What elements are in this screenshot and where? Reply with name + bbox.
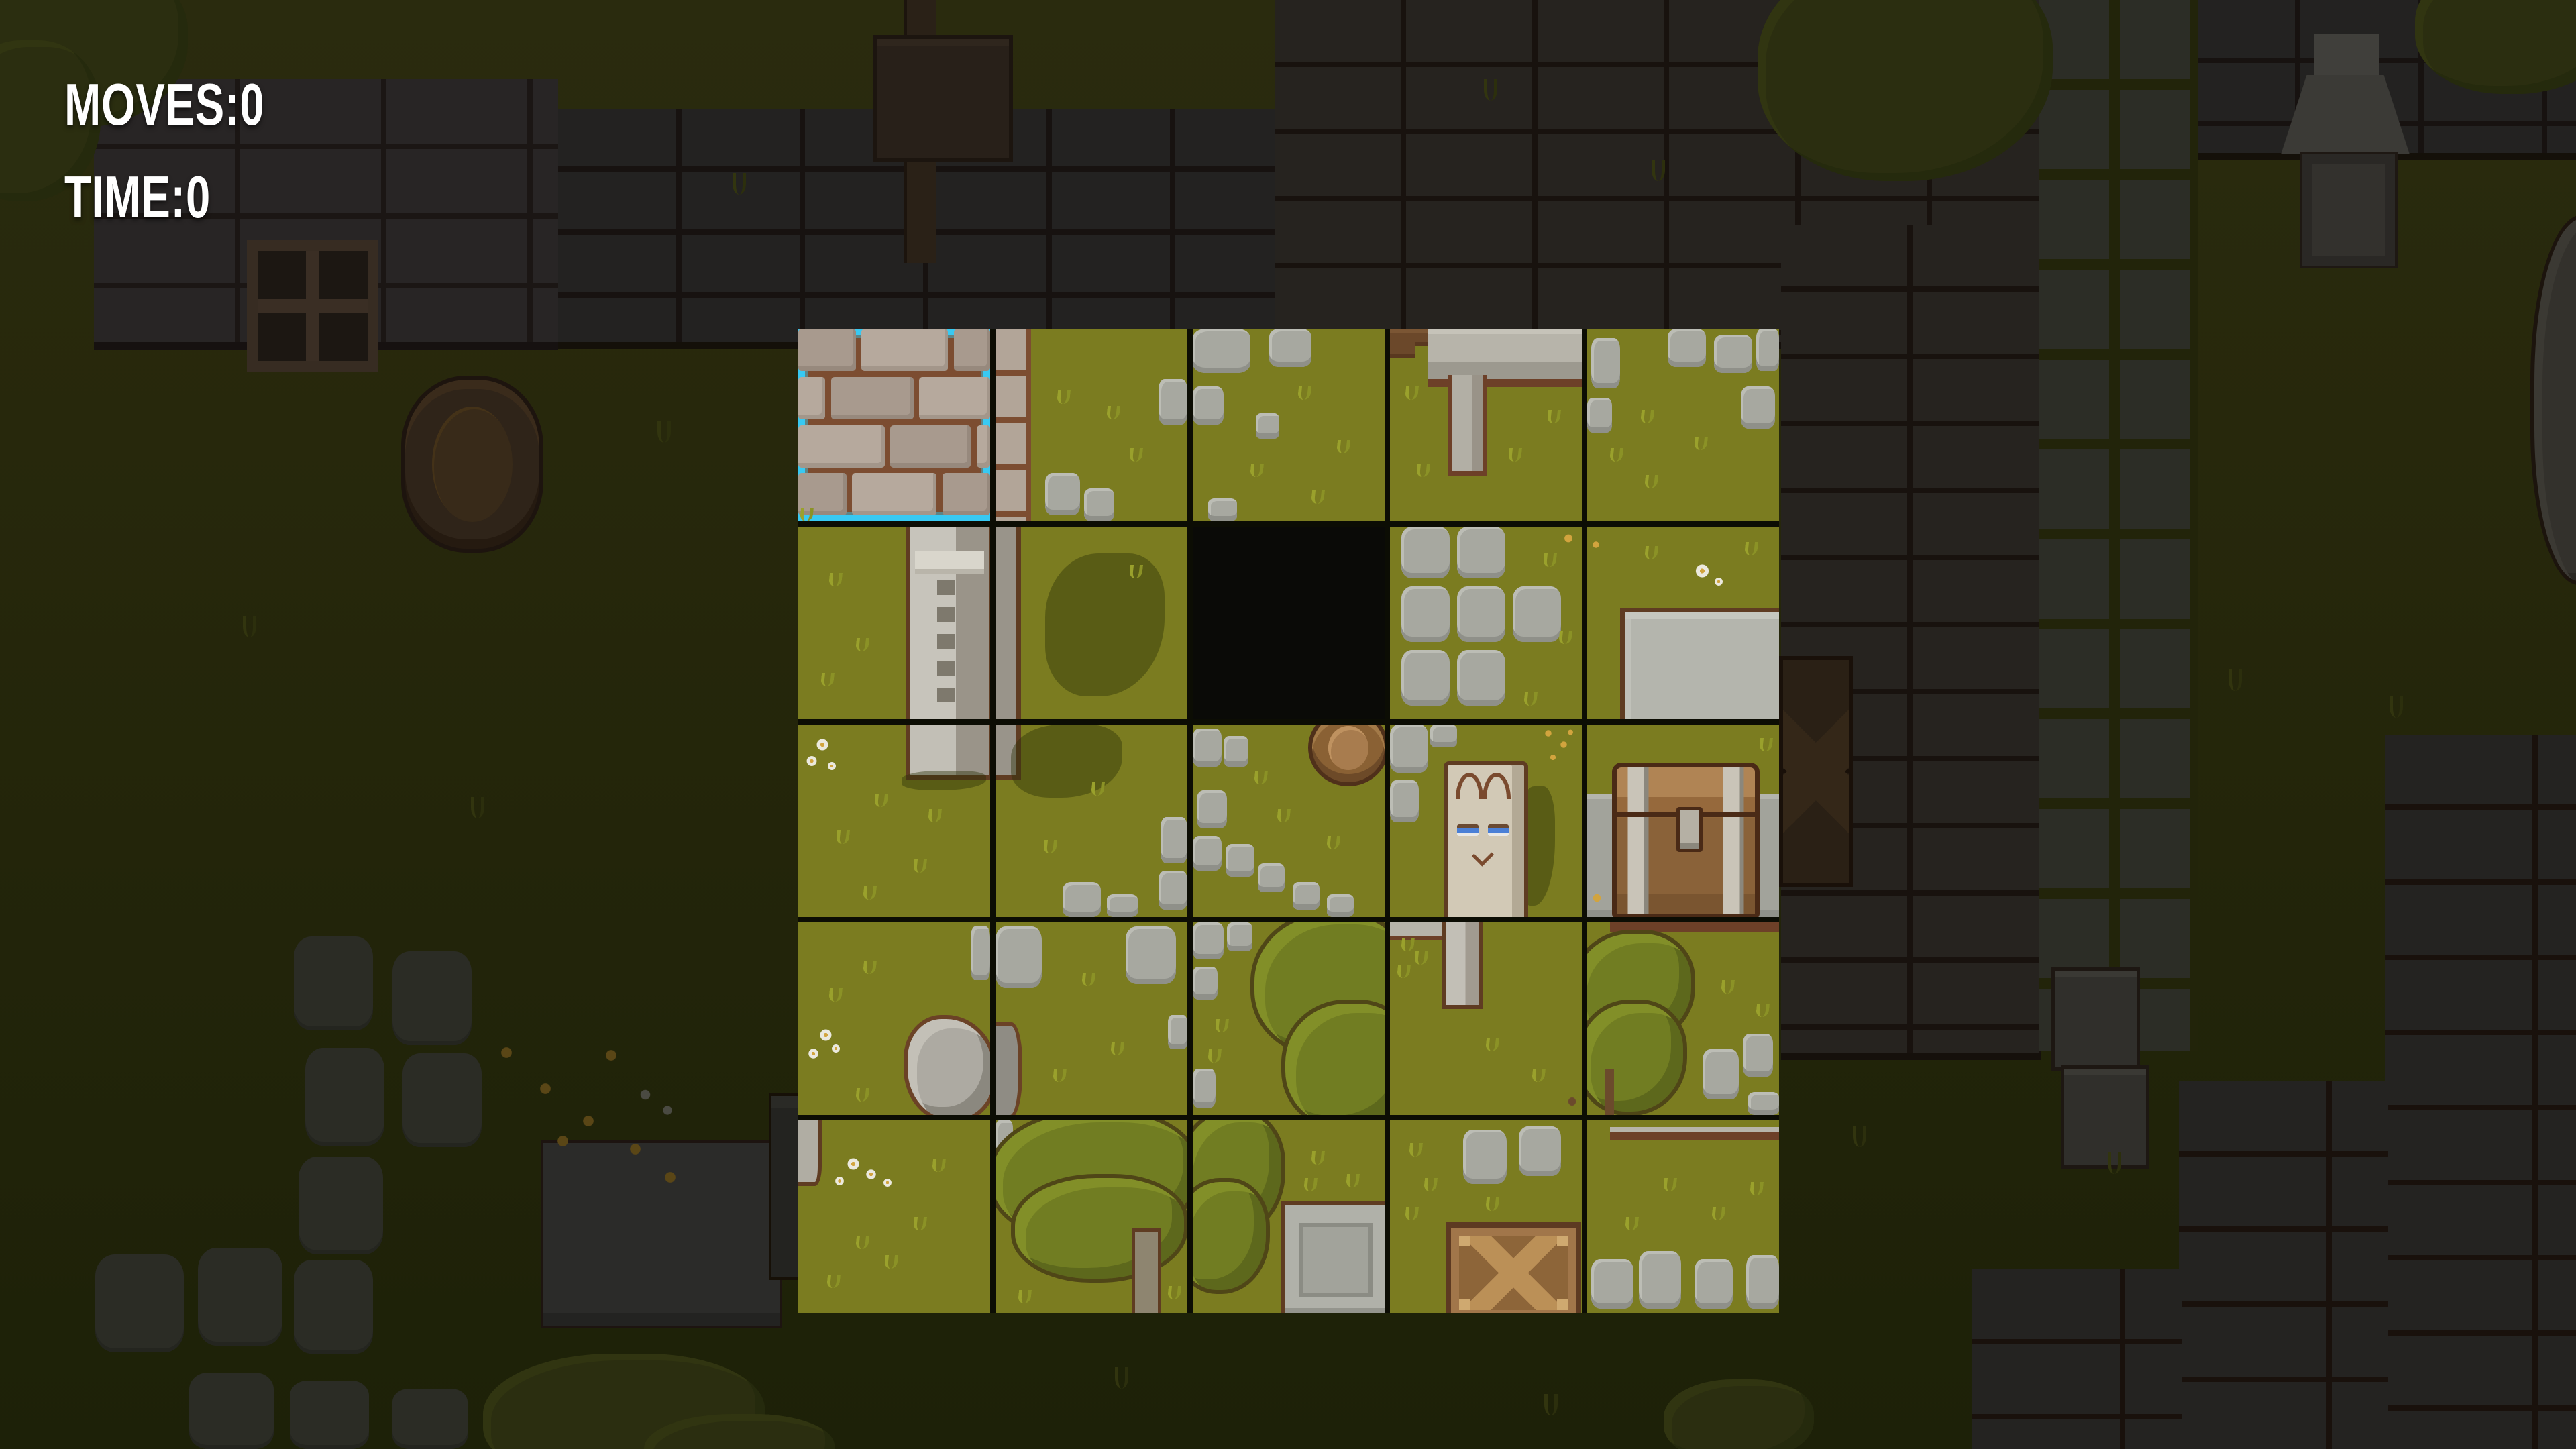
tuft-background [2229, 669, 2242, 691]
stone [1193, 386, 1224, 425]
tuft-background [657, 421, 671, 443]
tuft [1336, 440, 1350, 453]
stone [1159, 379, 1187, 425]
flowerw [806, 755, 817, 767]
puzzle-tile-r2c0[interactable] [798, 724, 990, 917]
pedestal [1281, 1201, 1385, 1313]
stone [1327, 894, 1354, 917]
brick [919, 377, 990, 419]
puzzle-tile-r1c0[interactable] [798, 527, 990, 719]
stone [971, 926, 990, 980]
flowerg [1559, 740, 1568, 749]
tuft [1424, 1178, 1438, 1191]
tuft [1018, 1290, 1032, 1303]
brick [798, 425, 885, 468]
barrel [1308, 724, 1385, 786]
pathstone-background [299, 1157, 383, 1254]
puzzle-tile-r0c1[interactable] [996, 329, 1187, 521]
tuft [1167, 1286, 1181, 1299]
wellbase-background [2300, 152, 2398, 268]
tuft [1346, 1174, 1360, 1187]
flowerw [1695, 563, 1710, 579]
wall2-background [1781, 225, 2041, 1060]
stone [1519, 1126, 1561, 1177]
tuft [863, 886, 877, 900]
foliage [1587, 1000, 1687, 1115]
obelisk [906, 527, 990, 719]
wline [1610, 1132, 1779, 1139]
tuft-background [1544, 1394, 1558, 1415]
shadow [902, 771, 986, 790]
stonebit-background [2061, 1065, 2149, 1169]
slab [1620, 608, 1779, 719]
puzzle-tile-r2c1[interactable] [996, 724, 1187, 917]
puzzle-tile-r3c0[interactable] [798, 922, 990, 1115]
wellbody-background [2314, 34, 2379, 78]
gravsliver [798, 1120, 822, 1186]
stone [1390, 780, 1419, 822]
pathstone-background [392, 951, 472, 1045]
pathcol-background [2039, 0, 2198, 1051]
tuft-background [1115, 1367, 1128, 1389]
pathstone-background [198, 1248, 282, 1346]
tuft [1081, 973, 1095, 986]
tuft-background [243, 616, 256, 637]
flowerg-background [661, 1169, 679, 1186]
foliage [1193, 1178, 1270, 1294]
stone [1463, 1130, 1507, 1183]
tuft [828, 988, 843, 1002]
stone [1703, 1049, 1739, 1099]
tuft [1405, 1207, 1419, 1220]
shadow [1045, 553, 1164, 696]
tuft [1405, 386, 1419, 400]
tuft [1056, 390, 1070, 404]
brick2 [954, 329, 990, 371]
puzzle-grid [798, 329, 1779, 1313]
stone [1258, 863, 1285, 892]
stone [1587, 398, 1612, 433]
tuft [1091, 782, 1105, 796]
tuft [1743, 542, 1758, 555]
sign-background [873, 35, 1013, 162]
puzzle-tile-r4c4[interactable] [1587, 1120, 1779, 1313]
tuft [1523, 692, 1538, 706]
stone [1063, 882, 1101, 917]
stone [1746, 1255, 1779, 1309]
foliage-background [1664, 1379, 1814, 1449]
puzzle-tile-r4c2[interactable] [1193, 1120, 1385, 1313]
puzzle-tile-r2c4[interactable] [1587, 724, 1779, 917]
tuft [1416, 464, 1430, 477]
tuft [1303, 1178, 1318, 1191]
stone [1401, 586, 1450, 642]
stone [1208, 498, 1237, 521]
flowerg [1562, 533, 1574, 544]
browndot [1568, 1097, 1576, 1105]
flowerg-background [627, 1140, 644, 1158]
pathstone-background [402, 1053, 482, 1147]
stone [1714, 335, 1752, 373]
tuft-background [2390, 696, 2403, 718]
brick [977, 425, 990, 468]
puzzle-tile-r3c4[interactable] [1587, 922, 1779, 1115]
tuft [1297, 386, 1311, 400]
puzzle-tile-r0c4[interactable] [1587, 329, 1779, 521]
tuft-background [471, 797, 484, 818]
window-background [247, 240, 378, 372]
flowerw [1714, 577, 1723, 586]
brickstrip [996, 329, 1031, 521]
stone [1227, 922, 1252, 951]
tuft [1215, 1019, 1229, 1032]
stone [1457, 650, 1505, 706]
flowerg-background [498, 1044, 515, 1061]
stone [1293, 882, 1320, 909]
puzzle-tile-r3c3[interactable] [1390, 922, 1582, 1115]
tuft [855, 1088, 869, 1102]
tuft [1397, 965, 1411, 978]
stonestrip [1390, 922, 1444, 940]
flowerg-background [554, 1132, 572, 1150]
tuft [913, 1217, 927, 1230]
brick [852, 473, 936, 515]
wallv [1448, 375, 1487, 477]
tuft [1694, 437, 1708, 450]
flowerg-background [537, 1080, 554, 1097]
flowerw [847, 1157, 860, 1171]
tuft-background [2108, 1152, 2121, 1174]
stone [1457, 586, 1505, 642]
tuft [855, 1236, 869, 1249]
stone [1168, 1015, 1187, 1050]
stone [1224, 736, 1248, 767]
puzzle-tile-r2c2[interactable] [1193, 724, 1385, 917]
stone [1193, 329, 1250, 373]
stone [1269, 329, 1311, 367]
tuft [1110, 1042, 1124, 1055]
stone [1193, 836, 1222, 871]
stone [1107, 894, 1138, 917]
tuft [855, 638, 869, 651]
flowerw [831, 1044, 841, 1053]
pillar [1442, 922, 1483, 1009]
flowerg [1591, 540, 1601, 549]
pathstone-background [294, 936, 373, 1030]
brick2 [943, 473, 991, 515]
brick [861, 329, 948, 371]
tuft [913, 859, 927, 873]
stone [1741, 386, 1775, 429]
flowerw [835, 1176, 844, 1185]
boulder-background [2530, 215, 2576, 585]
puzzle-tile-r1c1[interactable] [996, 527, 1187, 719]
brick2 [831, 377, 914, 419]
tuft [1756, 1004, 1770, 1017]
flowerg [1549, 753, 1556, 761]
time-counter: TIME:0 [64, 168, 264, 227]
brickfloor-background [2385, 735, 2576, 1449]
tuft [1759, 738, 1773, 751]
flowerw [816, 738, 829, 751]
stone [1193, 1069, 1216, 1107]
tuft [1326, 836, 1340, 849]
stone [1193, 922, 1224, 959]
tuft [1546, 410, 1560, 423]
tuft [800, 508, 814, 521]
brick2 [890, 425, 971, 468]
puzzle-tile-r1c2-empty [1193, 527, 1385, 719]
chest [1612, 763, 1760, 917]
stone [996, 926, 1042, 988]
tuft [820, 673, 835, 686]
stone [1457, 527, 1505, 578]
barrel-background [401, 376, 543, 553]
tuft [863, 961, 877, 974]
tuft [1609, 448, 1623, 462]
tuft [828, 573, 843, 586]
flowerw [883, 1178, 892, 1187]
flowerg-background [580, 1112, 597, 1130]
cat [1444, 761, 1528, 917]
flowerg [1544, 729, 1553, 738]
pathstone-background [392, 1389, 468, 1449]
puzzle-tile-r4c0[interactable] [798, 1120, 990, 1313]
trunkline [1605, 1069, 1614, 1115]
tuft [1053, 1069, 1067, 1082]
tuft [1640, 410, 1654, 423]
tuft [1508, 448, 1522, 462]
hud: MOVES:0 TIME:0 [64, 75, 335, 227]
stone [1193, 729, 1222, 767]
pathstone-background [95, 1254, 184, 1352]
flowerw [819, 1028, 833, 1042]
tuft-background [733, 173, 746, 195]
tuft [1485, 1038, 1499, 1051]
flowerw [865, 1169, 877, 1180]
stone [1401, 650, 1450, 706]
tuft [1663, 1178, 1677, 1191]
crate-background [1779, 656, 1853, 887]
puzzle-tile-r0c3[interactable] [1390, 329, 1582, 521]
flowerw [808, 1048, 819, 1059]
flowerg [1566, 729, 1574, 736]
tuft [1543, 553, 1557, 567]
flowerg-background [602, 1046, 620, 1064]
puzzle-tile-r1c3[interactable] [1390, 527, 1582, 719]
stone [1159, 871, 1187, 909]
brick2 [798, 329, 856, 371]
tuft-background [1652, 160, 1665, 181]
stone [1193, 967, 1218, 1000]
trunk [1132, 1228, 1161, 1313]
rocksliver [996, 1022, 1022, 1115]
brick [798, 377, 825, 419]
stone [1161, 817, 1187, 863]
flowerw-background [637, 1087, 653, 1103]
stone [1226, 844, 1254, 877]
tuft-background [1484, 79, 1497, 101]
tuft [1532, 1069, 1546, 1082]
stone [1430, 724, 1457, 747]
flowerg [1591, 892, 1603, 904]
time-label: TIME: [64, 164, 186, 230]
tuft [1129, 448, 1143, 462]
tuft [1207, 1049, 1222, 1063]
stone [1756, 329, 1779, 371]
stone [1197, 790, 1228, 828]
tuft [1414, 951, 1428, 965]
puzzle-tile-r4c3[interactable] [1390, 1120, 1582, 1313]
stone [1639, 1251, 1681, 1309]
tuft [1106, 406, 1120, 419]
stone [1084, 488, 1115, 521]
stone [1748, 1092, 1779, 1115]
obsliver [996, 527, 1021, 719]
tuft [1311, 490, 1325, 504]
stone [1390, 724, 1428, 773]
pathstone-background [290, 1381, 369, 1449]
stone [1401, 527, 1450, 578]
tuft [1644, 546, 1658, 559]
tuft [1625, 1217, 1639, 1230]
wood [1390, 329, 1415, 358]
puzzle-tile-r3c1[interactable] [996, 922, 1187, 1115]
tuft [1485, 1197, 1499, 1211]
tuft [826, 1275, 841, 1288]
tuft [874, 794, 888, 807]
moves-value: 0 [239, 71, 264, 138]
moves-label: MOVES: [64, 71, 239, 138]
pathstone-background [294, 1260, 373, 1354]
tuft [932, 1159, 946, 1172]
puzzle-tile-r1c4[interactable] [1587, 527, 1779, 719]
tuft [928, 809, 942, 822]
tuft [1250, 464, 1264, 477]
puzzle-tile-r4c1[interactable] [996, 1120, 1187, 1313]
stone [1513, 586, 1561, 642]
tuft [1721, 980, 1735, 994]
puzzle-tile-r0c0[interactable] [798, 329, 990, 521]
tuft [1277, 809, 1291, 822]
puzzle-tile-r0c2[interactable] [1193, 329, 1385, 521]
rock [904, 1015, 990, 1115]
time-value: 0 [186, 164, 211, 230]
flowerw-background [660, 1103, 675, 1118]
pathstone-background [189, 1373, 274, 1449]
stone [1743, 1034, 1774, 1076]
tuft [1644, 475, 1658, 488]
tuft [1253, 771, 1267, 784]
stone [1126, 926, 1175, 984]
tuft [1409, 1143, 1423, 1157]
shadow [1011, 724, 1122, 798]
tuft-background [1853, 1126, 1866, 1147]
stone [1591, 338, 1620, 388]
tuft [1711, 1207, 1725, 1220]
pathstone-background [305, 1048, 384, 1146]
crate [1446, 1222, 1581, 1313]
stone [1045, 473, 1079, 515]
stone [1256, 413, 1279, 438]
tuft [836, 830, 850, 844]
puzzle-tile-r2c3[interactable] [1390, 724, 1582, 917]
stonebit-background [2051, 967, 2140, 1071]
brickfloor-background [2179, 1081, 2388, 1449]
stone [1695, 1259, 1733, 1309]
tuft [1042, 840, 1057, 853]
tuft [1558, 631, 1572, 644]
brickfloor-background [1972, 1269, 2182, 1449]
tuft [1401, 938, 1415, 951]
cateye [1488, 824, 1509, 836]
tuft [884, 1255, 898, 1269]
flowerw [827, 761, 837, 771]
tuft [1750, 1182, 1764, 1195]
stone [1591, 1259, 1633, 1309]
puzzle-tile-r3c2[interactable] [1193, 922, 1385, 1115]
cateye [1457, 824, 1478, 836]
stone [1668, 329, 1706, 367]
obdark-background [769, 1093, 802, 1280]
tuft [1311, 1151, 1325, 1165]
moves-counter: MOVES:0 [64, 75, 264, 134]
